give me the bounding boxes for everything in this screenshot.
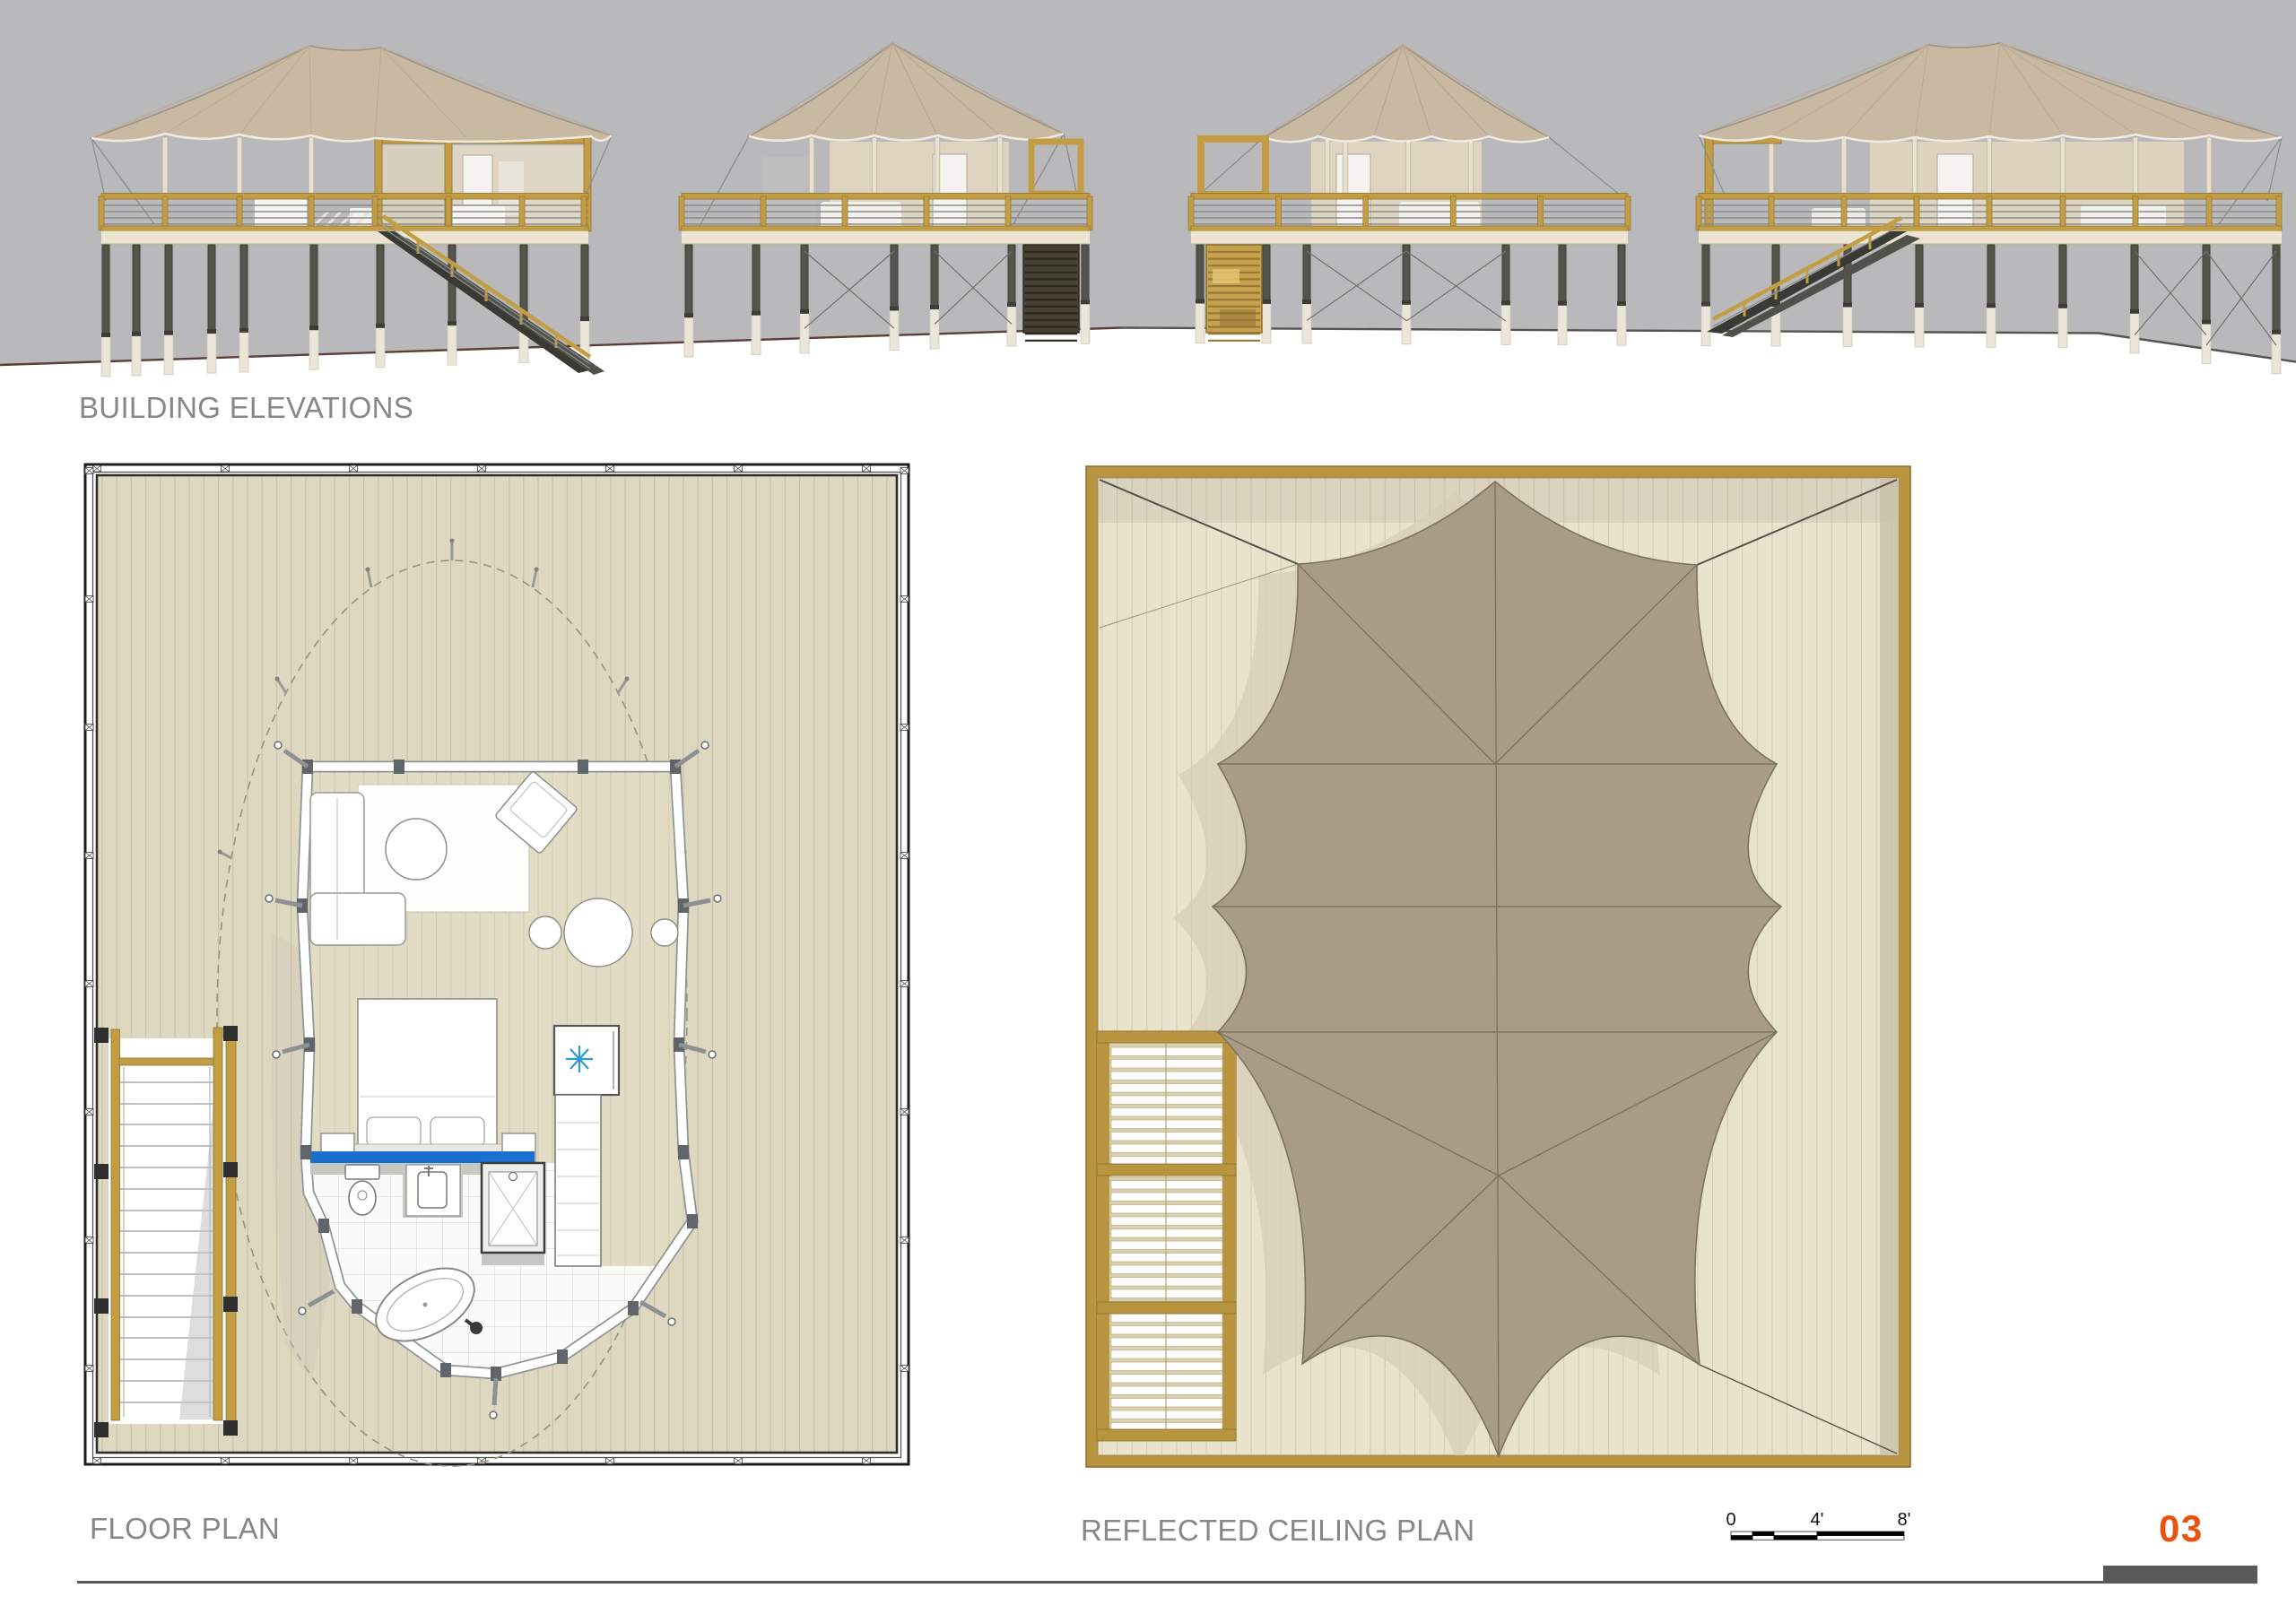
svg-text:REFLECTED CEILING PLAN: REFLECTED CEILING PLAN	[1081, 1514, 1474, 1547]
svg-text:BUILDING ELEVATIONS: BUILDING ELEVATIONS	[79, 391, 413, 424]
svg-text:03: 03	[2159, 1507, 2204, 1549]
svg-text:0: 0	[1726, 1510, 1735, 1530]
svg-text:8': 8'	[1898, 1510, 1911, 1530]
svg-text:FLOOR PLAN: FLOOR PLAN	[90, 1512, 280, 1545]
svg-text:4': 4'	[1811, 1510, 1824, 1530]
